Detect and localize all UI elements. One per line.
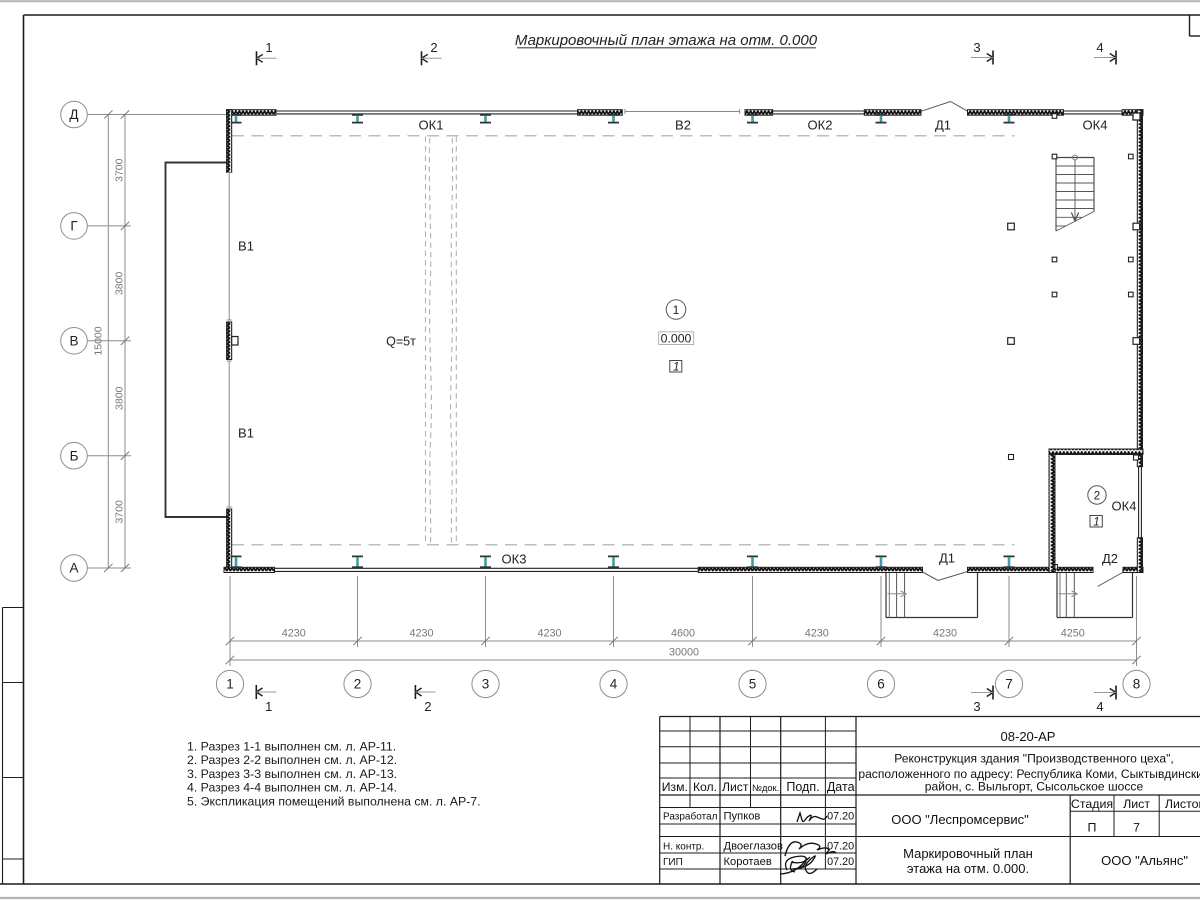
svg-text:3800: 3800 (114, 272, 126, 296)
svg-text:Двоеглазов: Двоеглазов (724, 841, 784, 853)
svg-text:4230: 4230 (805, 628, 829, 640)
svg-text:Дата: Дата (827, 780, 855, 794)
svg-text:5. Экспликация помещений выпол: 5. Экспликация помещений выполнена см. л… (187, 794, 481, 808)
svg-text:4230: 4230 (537, 628, 561, 640)
svg-text:ГИП: ГИП (663, 857, 683, 868)
svg-text:В1: В1 (238, 239, 254, 254)
svg-text:2. Разрез 2-2 выполнен см. л.: 2. Разрез 2-2 выполнен см. л. АР-12. (187, 753, 397, 767)
svg-text:1: 1 (226, 677, 234, 692)
svg-text:2: 2 (430, 40, 437, 55)
svg-text:Д: Д (69, 107, 78, 122)
svg-text:4230: 4230 (409, 628, 433, 640)
svg-text:3: 3 (973, 40, 980, 55)
svg-text:7: 7 (1133, 821, 1140, 835)
svg-text:3: 3 (973, 699, 980, 714)
svg-text:ОК1: ОК1 (419, 118, 444, 133)
svg-text:4230: 4230 (282, 628, 306, 640)
svg-text:1: 1 (1093, 516, 1099, 528)
svg-text:Лист: Лист (722, 780, 749, 794)
svg-text:0.000: 0.000 (661, 331, 692, 345)
svg-text:5: 5 (749, 677, 757, 692)
svg-text:4: 4 (1096, 40, 1103, 55)
svg-text:А: А (69, 561, 78, 576)
svg-text:2: 2 (354, 677, 362, 692)
svg-text:Изм.: Изм. (662, 780, 688, 794)
svg-text:Н. контр.: Н. контр. (663, 842, 704, 853)
svg-text:Листов: Листов (1165, 797, 1200, 811)
svg-text:Стадия: Стадия (1071, 797, 1113, 811)
svg-text:этажа на отм. 0.000.: этажа на отм. 0.000. (907, 861, 1029, 876)
svg-text:4: 4 (1096, 699, 1103, 714)
svg-text:1: 1 (265, 699, 272, 714)
svg-text:ООО "Альянс": ООО "Альянс" (1101, 853, 1188, 868)
svg-text:1: 1 (673, 361, 679, 373)
svg-text:3700: 3700 (114, 500, 126, 524)
svg-text:Д1: Д1 (939, 551, 955, 566)
svg-text:Пупков: Пупков (724, 811, 761, 823)
svg-text:№док.: №док. (752, 783, 779, 793)
svg-text:7: 7 (1005, 677, 1013, 692)
svg-text:В1: В1 (238, 426, 254, 441)
svg-text:ОК4: ОК4 (1083, 118, 1108, 133)
svg-text:4250: 4250 (1061, 628, 1085, 640)
svg-text:08-20-АР: 08-20-АР (1001, 729, 1056, 744)
svg-text:ОК4: ОК4 (1112, 499, 1137, 514)
svg-text:4600: 4600 (671, 628, 695, 640)
svg-text:Кол.: Кол. (693, 780, 717, 794)
svg-text:Маркировочный план этажа на от: Маркировочный план этажа на отм. 0.000 (515, 32, 818, 49)
svg-text:Г: Г (70, 219, 78, 234)
svg-text:В2: В2 (675, 118, 691, 133)
svg-text:Реконструкция здания "Производ: Реконструкция здания "Производственного … (894, 751, 1174, 765)
svg-text:3800: 3800 (114, 386, 126, 410)
svg-text:район, с. Выльгорт, Сысольское: район, с. Выльгорт, Сысольское шоссе (925, 780, 1144, 794)
svg-text:3: 3 (482, 677, 490, 692)
svg-text:8: 8 (1133, 677, 1141, 692)
svg-text:6: 6 (877, 677, 885, 692)
svg-text:1. Разрез 1-1 выполнен см. л.: 1. Разрез 1-1 выполнен см. л. АР-11. (187, 740, 396, 754)
svg-text:Подп.: Подп. (786, 780, 819, 794)
svg-text:4230: 4230 (933, 628, 957, 640)
svg-text:2: 2 (1094, 490, 1100, 502)
svg-text:30000: 30000 (669, 647, 699, 659)
svg-text:Коротаев: Коротаев (724, 856, 772, 868)
svg-text:Лист: Лист (1123, 797, 1150, 811)
svg-text:07.20: 07.20 (827, 841, 854, 853)
svg-text:07.20: 07.20 (827, 811, 854, 823)
svg-text:Д2: Д2 (1102, 551, 1118, 566)
svg-text:3700: 3700 (114, 158, 126, 182)
svg-text:В: В (69, 333, 78, 348)
svg-text:ОК3: ОК3 (502, 552, 527, 567)
svg-text:ОК2: ОК2 (808, 118, 833, 133)
svg-text:1: 1 (673, 303, 680, 317)
svg-text:4. Разрез 4-4 выполнен см. л.: 4. Разрез 4-4 выполнен см. л. АР-14. (187, 781, 397, 795)
svg-text:ООО "Леспромсервис": ООО "Леспромсервис" (891, 812, 1029, 827)
svg-text:Б: Б (70, 448, 79, 463)
svg-text:Q=5т: Q=5т (386, 335, 416, 349)
svg-text:Разработал: Разработал (663, 811, 718, 823)
svg-text:07.20: 07.20 (827, 856, 854, 868)
svg-text:Д1: Д1 (935, 118, 951, 133)
svg-text:15000: 15000 (93, 326, 105, 355)
svg-text:Маркировочный план: Маркировочный план (903, 846, 1033, 861)
svg-text:1: 1 (265, 40, 272, 55)
svg-text:3. Разрез 3-3 выполнен см. л.: 3. Разрез 3-3 выполнен см. л. АР-13. (187, 767, 397, 781)
svg-text:4: 4 (610, 677, 618, 692)
svg-text:П: П (1088, 821, 1097, 835)
svg-text:2: 2 (424, 699, 431, 714)
